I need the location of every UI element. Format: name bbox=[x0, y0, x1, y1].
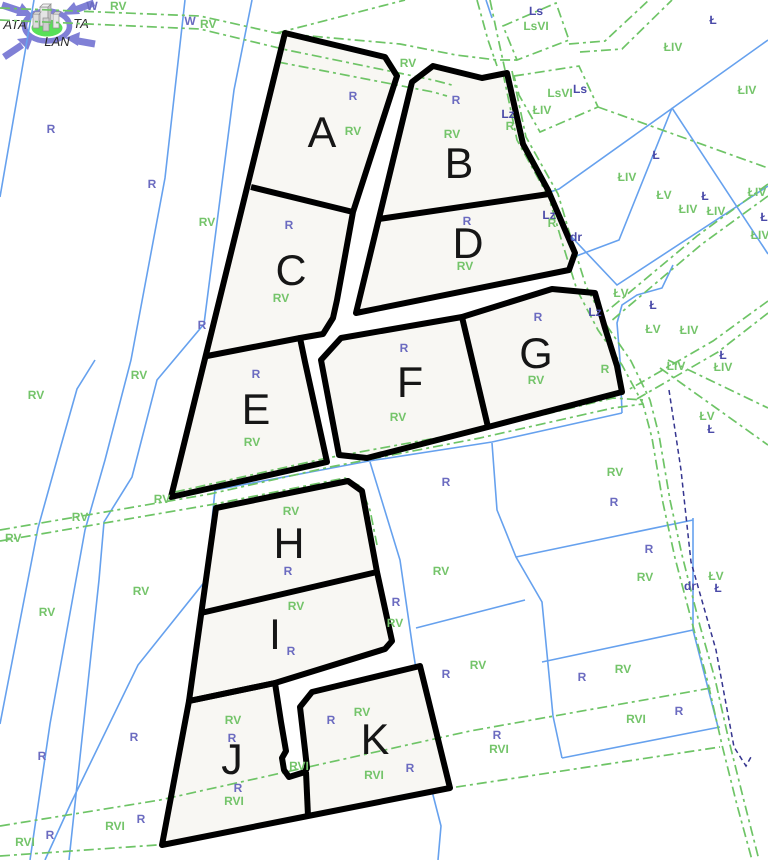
svg-text:ŁIV: ŁIV bbox=[618, 170, 637, 184]
svg-text:RV: RV bbox=[433, 564, 449, 578]
svg-text:R: R bbox=[38, 749, 47, 763]
svg-text:RV: RV bbox=[345, 124, 361, 138]
svg-text:ŁIV: ŁIV bbox=[664, 40, 683, 54]
svg-text:R: R bbox=[442, 475, 451, 489]
svg-text:R: R bbox=[130, 730, 139, 744]
svg-text:R: R bbox=[148, 177, 157, 191]
svg-text:R: R bbox=[406, 761, 415, 775]
svg-text:RV: RV bbox=[200, 17, 216, 31]
svg-text:ŁV: ŁV bbox=[613, 286, 628, 300]
svg-text:ŁV: ŁV bbox=[656, 188, 671, 202]
svg-text:F: F bbox=[397, 359, 423, 407]
svg-text:Ł: Ł bbox=[760, 210, 767, 224]
svg-text:W: W bbox=[86, 0, 98, 13]
svg-text:R: R bbox=[493, 728, 502, 742]
svg-text:I: I bbox=[269, 611, 281, 659]
svg-text:ŁV: ŁV bbox=[645, 322, 660, 336]
svg-text:RV: RV bbox=[28, 388, 44, 402]
svg-text:R: R bbox=[645, 542, 654, 556]
svg-text:R: R bbox=[675, 704, 684, 718]
svg-text:RV: RV bbox=[457, 259, 473, 273]
svg-text:W: W bbox=[184, 14, 196, 28]
svg-text:R: R bbox=[506, 119, 515, 133]
svg-text:K: K bbox=[361, 716, 390, 764]
svg-text:R: R bbox=[234, 781, 243, 795]
svg-text:R: R bbox=[578, 670, 587, 684]
svg-text:Lz: Lz bbox=[588, 305, 601, 319]
svg-text:R: R bbox=[463, 214, 472, 228]
svg-text:RV: RV bbox=[5, 531, 21, 545]
svg-text:RVI: RVI bbox=[224, 794, 244, 808]
svg-text:RV: RV bbox=[390, 410, 406, 424]
svg-text:RVI: RVI bbox=[626, 712, 646, 726]
svg-text:ŁIV: ŁIV bbox=[680, 323, 699, 337]
svg-text:Ł: Ł bbox=[707, 422, 714, 436]
svg-text:RV: RV bbox=[154, 492, 170, 506]
svg-text:ŁIV: ŁIV bbox=[533, 103, 552, 117]
svg-text:RVI: RVI bbox=[364, 768, 384, 782]
svg-text:ŁIV: ŁIV bbox=[679, 202, 698, 216]
svg-text:Ł: Ł bbox=[652, 148, 659, 162]
svg-text:R: R bbox=[442, 667, 451, 681]
svg-text:RVI: RVI bbox=[15, 835, 35, 849]
svg-text:RV: RV bbox=[528, 373, 544, 387]
svg-text:RVI: RVI bbox=[289, 759, 309, 773]
svg-text:R: R bbox=[534, 310, 543, 324]
svg-text:LAN: LAN bbox=[44, 34, 70, 49]
svg-text:RV: RV bbox=[470, 658, 486, 672]
svg-text:ATA: ATA bbox=[2, 17, 26, 32]
svg-text:RV: RV bbox=[444, 127, 460, 141]
svg-text:Ł: Ł bbox=[714, 581, 721, 595]
svg-text:A: A bbox=[308, 109, 337, 157]
svg-text:RV: RV bbox=[273, 291, 289, 305]
svg-text:RV: RV bbox=[72, 510, 88, 524]
svg-text:R: R bbox=[198, 318, 207, 332]
svg-text:R: R bbox=[46, 828, 55, 842]
svg-text:R: R bbox=[392, 595, 401, 609]
svg-text:E: E bbox=[242, 386, 271, 434]
svg-text:R: R bbox=[284, 564, 293, 578]
svg-text:R: R bbox=[285, 218, 294, 232]
svg-text:H: H bbox=[273, 520, 304, 568]
svg-text:ŁIV: ŁIV bbox=[738, 83, 757, 97]
svg-text:RV: RV bbox=[615, 662, 631, 676]
svg-text:LsVI: LsVI bbox=[523, 19, 548, 33]
svg-text:Ł: Ł bbox=[709, 13, 716, 27]
svg-text:ŁIV: ŁIV bbox=[714, 360, 733, 374]
svg-text:RV: RV bbox=[400, 56, 416, 70]
svg-text:R: R bbox=[400, 341, 409, 355]
svg-text:RV: RV bbox=[199, 215, 215, 229]
svg-text:Ls: Ls bbox=[573, 82, 587, 96]
svg-text:R: R bbox=[327, 713, 336, 727]
svg-text:RV: RV bbox=[225, 713, 241, 727]
svg-text:RV: RV bbox=[607, 465, 623, 479]
svg-text:G: G bbox=[519, 330, 552, 378]
svg-text:Ls: Ls bbox=[529, 4, 543, 18]
svg-text:C: C bbox=[275, 247, 306, 295]
svg-text:RV: RV bbox=[354, 705, 370, 719]
svg-text:R: R bbox=[47, 122, 56, 136]
svg-text:R: R bbox=[548, 216, 557, 230]
svg-text:ŁIV: ŁIV bbox=[748, 185, 767, 199]
svg-text:LsVI: LsVI bbox=[547, 86, 572, 100]
svg-text:RV: RV bbox=[387, 616, 403, 630]
svg-text:R: R bbox=[287, 644, 296, 658]
svg-text:B: B bbox=[445, 140, 474, 188]
svg-text:ŁV: ŁV bbox=[699, 409, 714, 423]
svg-text:RV: RV bbox=[39, 605, 55, 619]
svg-text:R: R bbox=[252, 367, 261, 381]
svg-text:ŁIV: ŁIV bbox=[667, 359, 686, 373]
svg-text:R: R bbox=[610, 495, 619, 509]
svg-text:R: R bbox=[228, 731, 237, 745]
svg-text:dr: dr bbox=[684, 579, 696, 593]
svg-text:RVI: RVI bbox=[105, 819, 125, 833]
svg-text:RV: RV bbox=[131, 368, 147, 382]
svg-text:RV: RV bbox=[244, 435, 260, 449]
svg-text:RV: RV bbox=[637, 570, 653, 584]
svg-text:R: R bbox=[601, 362, 610, 376]
svg-text:RV: RV bbox=[288, 599, 304, 613]
svg-text:ŁIV: ŁIV bbox=[751, 228, 768, 242]
svg-text:R: R bbox=[452, 93, 461, 107]
svg-text:ŁIV: ŁIV bbox=[707, 204, 726, 218]
svg-text:Ł: Ł bbox=[649, 298, 656, 312]
svg-text:RV: RV bbox=[110, 0, 126, 13]
svg-text:R: R bbox=[137, 812, 146, 826]
svg-text:RVI: RVI bbox=[489, 742, 509, 756]
svg-text:R: R bbox=[349, 89, 358, 103]
svg-text:RV: RV bbox=[133, 584, 149, 598]
svg-text:RV: RV bbox=[283, 504, 299, 518]
svg-text:Ł: Ł bbox=[701, 189, 708, 203]
svg-text:dr: dr bbox=[570, 230, 582, 244]
